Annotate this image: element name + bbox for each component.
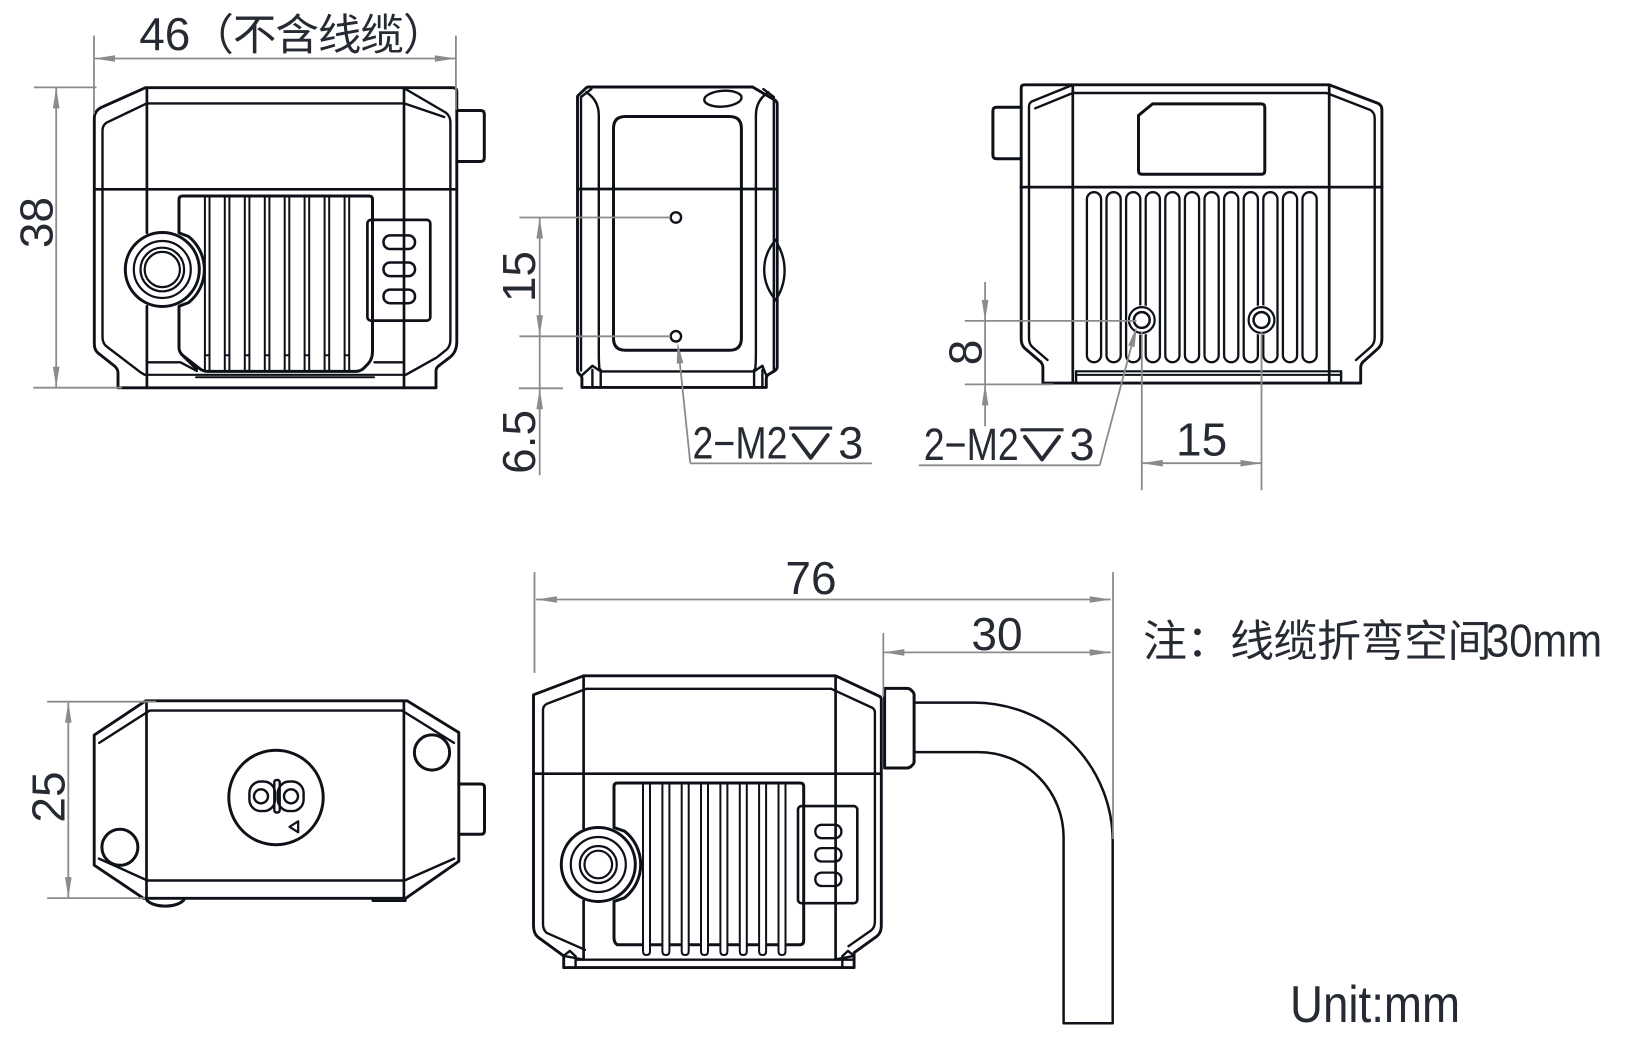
svg-text:46: 46 xyxy=(139,8,190,60)
svg-text:8: 8 xyxy=(940,340,992,366)
svg-text:3: 3 xyxy=(1070,419,1095,470)
svg-text:76: 76 xyxy=(785,552,836,604)
svg-text:30mm: 30mm xyxy=(1486,615,1602,667)
svg-text:30: 30 xyxy=(971,608,1022,660)
svg-text:15: 15 xyxy=(1176,414,1227,466)
svg-text:6.5: 6.5 xyxy=(493,410,545,474)
svg-text:Unit:mm: Unit:mm xyxy=(1290,976,1460,1034)
svg-text:2−M2: 2−M2 xyxy=(693,417,788,468)
svg-text:3: 3 xyxy=(838,417,863,468)
svg-text:25: 25 xyxy=(23,771,75,822)
svg-text:2−M2: 2−M2 xyxy=(924,419,1019,470)
svg-text:15: 15 xyxy=(493,251,545,302)
svg-text:38: 38 xyxy=(11,197,63,248)
